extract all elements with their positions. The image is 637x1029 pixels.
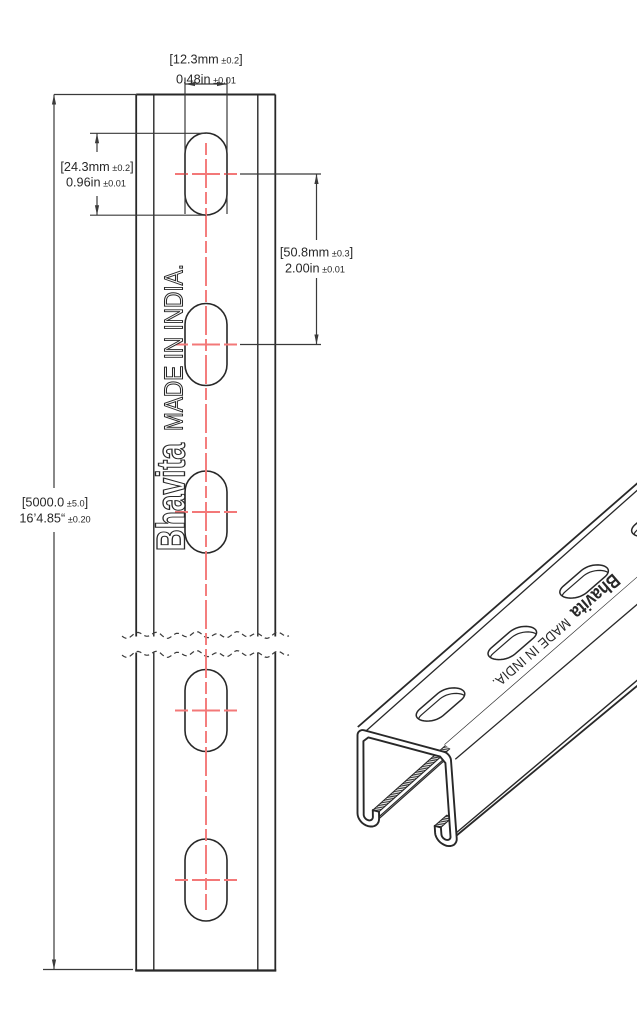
svg-text:MADE IN INDIA.: MADE IN INDIA. [159, 264, 189, 431]
svg-text:0.48in ±0.01: 0.48in ±0.01 [176, 73, 236, 87]
svg-text:[5000.0 ±5.0]: [5000.0 ±5.0] [22, 496, 88, 510]
svg-text:2.00in ±0.01: 2.00in ±0.01 [285, 262, 345, 276]
svg-text:[50.8mm ±0.3]: [50.8mm ±0.3] [280, 246, 353, 260]
svg-text:16’4.85“ ±0.20: 16’4.85“ ±0.20 [19, 512, 90, 526]
svg-text:Bhavita: Bhavita [150, 442, 194, 551]
svg-text:0.96in ±0.01: 0.96in ±0.01 [66, 176, 126, 190]
svg-text:[12.3mm ±0.2]: [12.3mm ±0.2] [169, 53, 242, 67]
svg-text:[24.3mm ±0.2]: [24.3mm ±0.2] [60, 160, 133, 174]
